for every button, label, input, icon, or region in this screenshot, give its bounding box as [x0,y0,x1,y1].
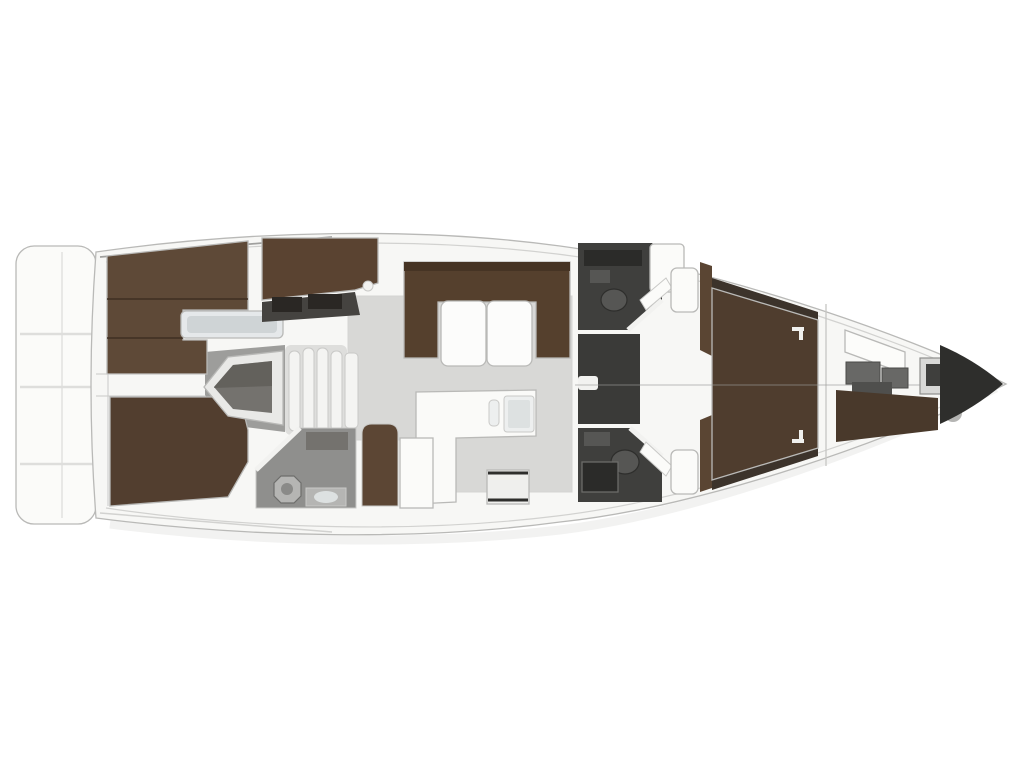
nightstand-starboard [671,450,698,494]
head-stbd-shower-tray [582,462,618,492]
nav-cabinet [400,438,433,508]
toilet-bowl [281,483,293,495]
locker-box [308,294,342,309]
companionway-landing [345,353,358,428]
head-port-counter [584,250,642,266]
aft-head-shower [306,432,348,450]
vanity-sink [363,281,373,291]
stowage-box [846,362,880,384]
windlass-motor [926,364,940,386]
nightstand-port [671,268,698,312]
floorplan-svg [0,0,1024,768]
nav-seat [362,424,398,506]
bow-anchor-locker [940,345,1003,424]
locker-box [272,297,302,312]
companionway-step [331,351,342,431]
galley-sink-basin [508,400,530,428]
yacht-floorplan-canvas [0,0,1024,768]
swim-platform-pad [16,246,96,524]
shower-handle [578,376,598,390]
pillow-mark [792,439,804,443]
wardrobe-port [700,262,712,356]
dining-table-leaf [487,301,532,366]
forepeak-floor [836,390,938,442]
owner-bed [712,288,818,480]
dining-table-leaf [441,301,486,366]
settee-backrest [404,262,570,271]
head-port-toilet [601,289,627,311]
swim-platform [16,246,96,524]
companionway-step [317,348,328,433]
shower-room [578,334,640,424]
companionway-step [289,351,300,431]
head-stbd-sink [584,432,610,446]
companionway-step [303,348,314,433]
galley-faucet [489,400,499,426]
wardrobe-starboard [700,415,712,492]
salon-settee [404,262,570,366]
head-port-locker [590,270,610,283]
pillow-mark [792,327,804,331]
aft-head-sink [314,491,338,503]
